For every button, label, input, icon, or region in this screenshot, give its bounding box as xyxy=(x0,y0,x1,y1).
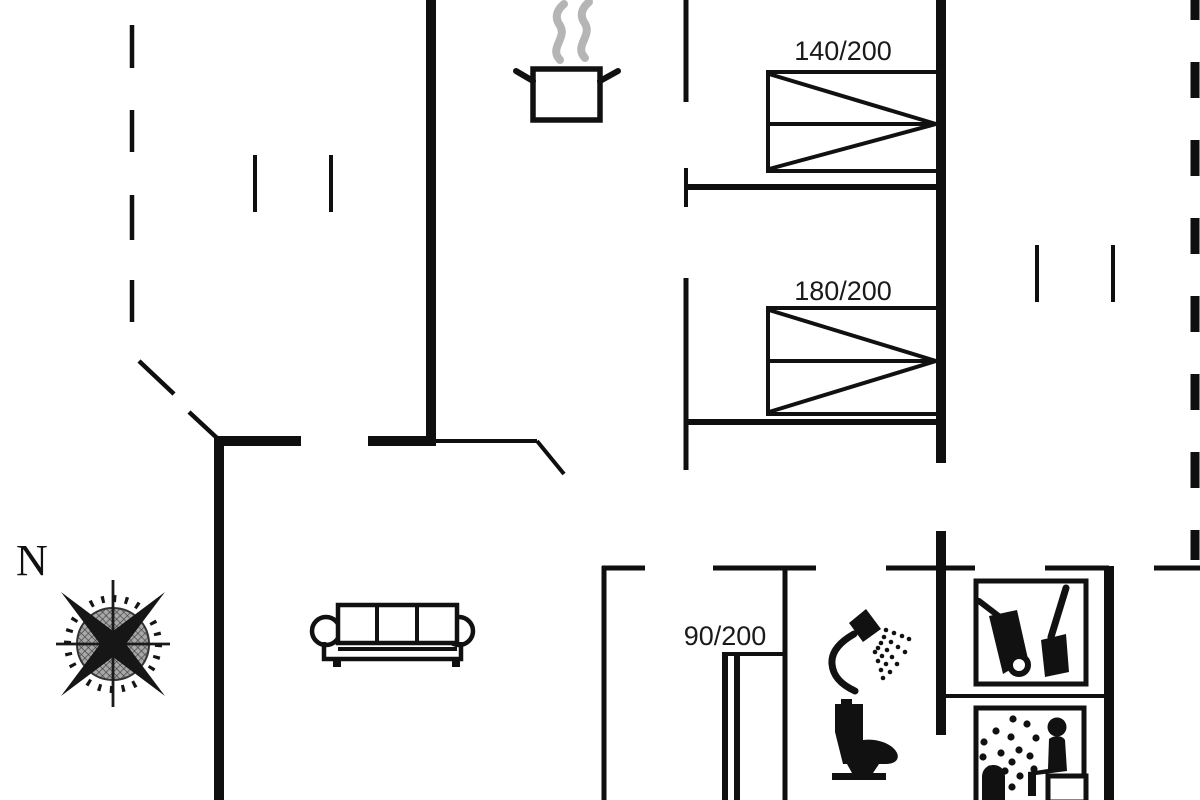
sofa-icon xyxy=(312,605,473,667)
wheelbarrow-icon xyxy=(979,601,1028,674)
steam-icon xyxy=(556,4,564,60)
bed-diagonal xyxy=(769,74,936,124)
dash xyxy=(139,361,174,394)
bed-outline xyxy=(768,72,938,171)
wheelbarrow-wheel xyxy=(1010,656,1028,674)
compass-north-label: N xyxy=(16,536,48,585)
cooking-pot-icon xyxy=(516,2,618,120)
spade-blade xyxy=(1041,634,1069,677)
floor-plan: 140/200 180/200 90/200 xyxy=(0,0,1200,800)
sofa-back xyxy=(338,605,457,643)
bed-size-label: 180/200 xyxy=(794,276,892,306)
shower-hose xyxy=(832,634,855,691)
bed-diagonal xyxy=(769,361,936,412)
sauna-heater-icon xyxy=(982,765,1005,800)
bed-size-label: 140/200 xyxy=(794,36,892,66)
pictogram-frame xyxy=(976,581,1086,684)
steam-icon xyxy=(581,2,589,58)
toilet-pedestal xyxy=(847,764,879,773)
terrace-dashed-boundary xyxy=(132,25,217,438)
bed-90x200 xyxy=(722,654,785,800)
utility-room-pictogram xyxy=(976,581,1086,684)
toilet-bowl xyxy=(835,732,898,764)
bed-180x200 xyxy=(768,308,938,414)
toilet-icon xyxy=(832,699,898,780)
toilet-tank xyxy=(835,704,863,732)
bed-size-label: 90/200 xyxy=(684,621,767,651)
pot-body xyxy=(533,69,600,120)
shower-icon xyxy=(832,609,911,691)
shower-spray xyxy=(873,628,912,681)
toilet-base xyxy=(832,773,886,780)
sauna-bench xyxy=(1048,776,1086,800)
floor-plan-drawing: 140/200 180/200 90/200 xyxy=(0,0,1200,800)
sitting-person-head xyxy=(1048,718,1067,737)
door-swing xyxy=(537,441,564,474)
bed-diagonal xyxy=(769,124,936,169)
spade-shaft xyxy=(1051,588,1066,637)
sauna-icon xyxy=(979,715,1086,800)
spade-icon xyxy=(1041,588,1069,677)
dash xyxy=(189,412,217,438)
sauna-pictogram xyxy=(976,708,1086,800)
bed-140x200 xyxy=(768,72,938,171)
sofa-leg xyxy=(452,659,460,667)
sofa-leg xyxy=(333,659,341,667)
compass-rose-icon xyxy=(56,580,170,707)
bed-diagonal xyxy=(769,310,936,361)
